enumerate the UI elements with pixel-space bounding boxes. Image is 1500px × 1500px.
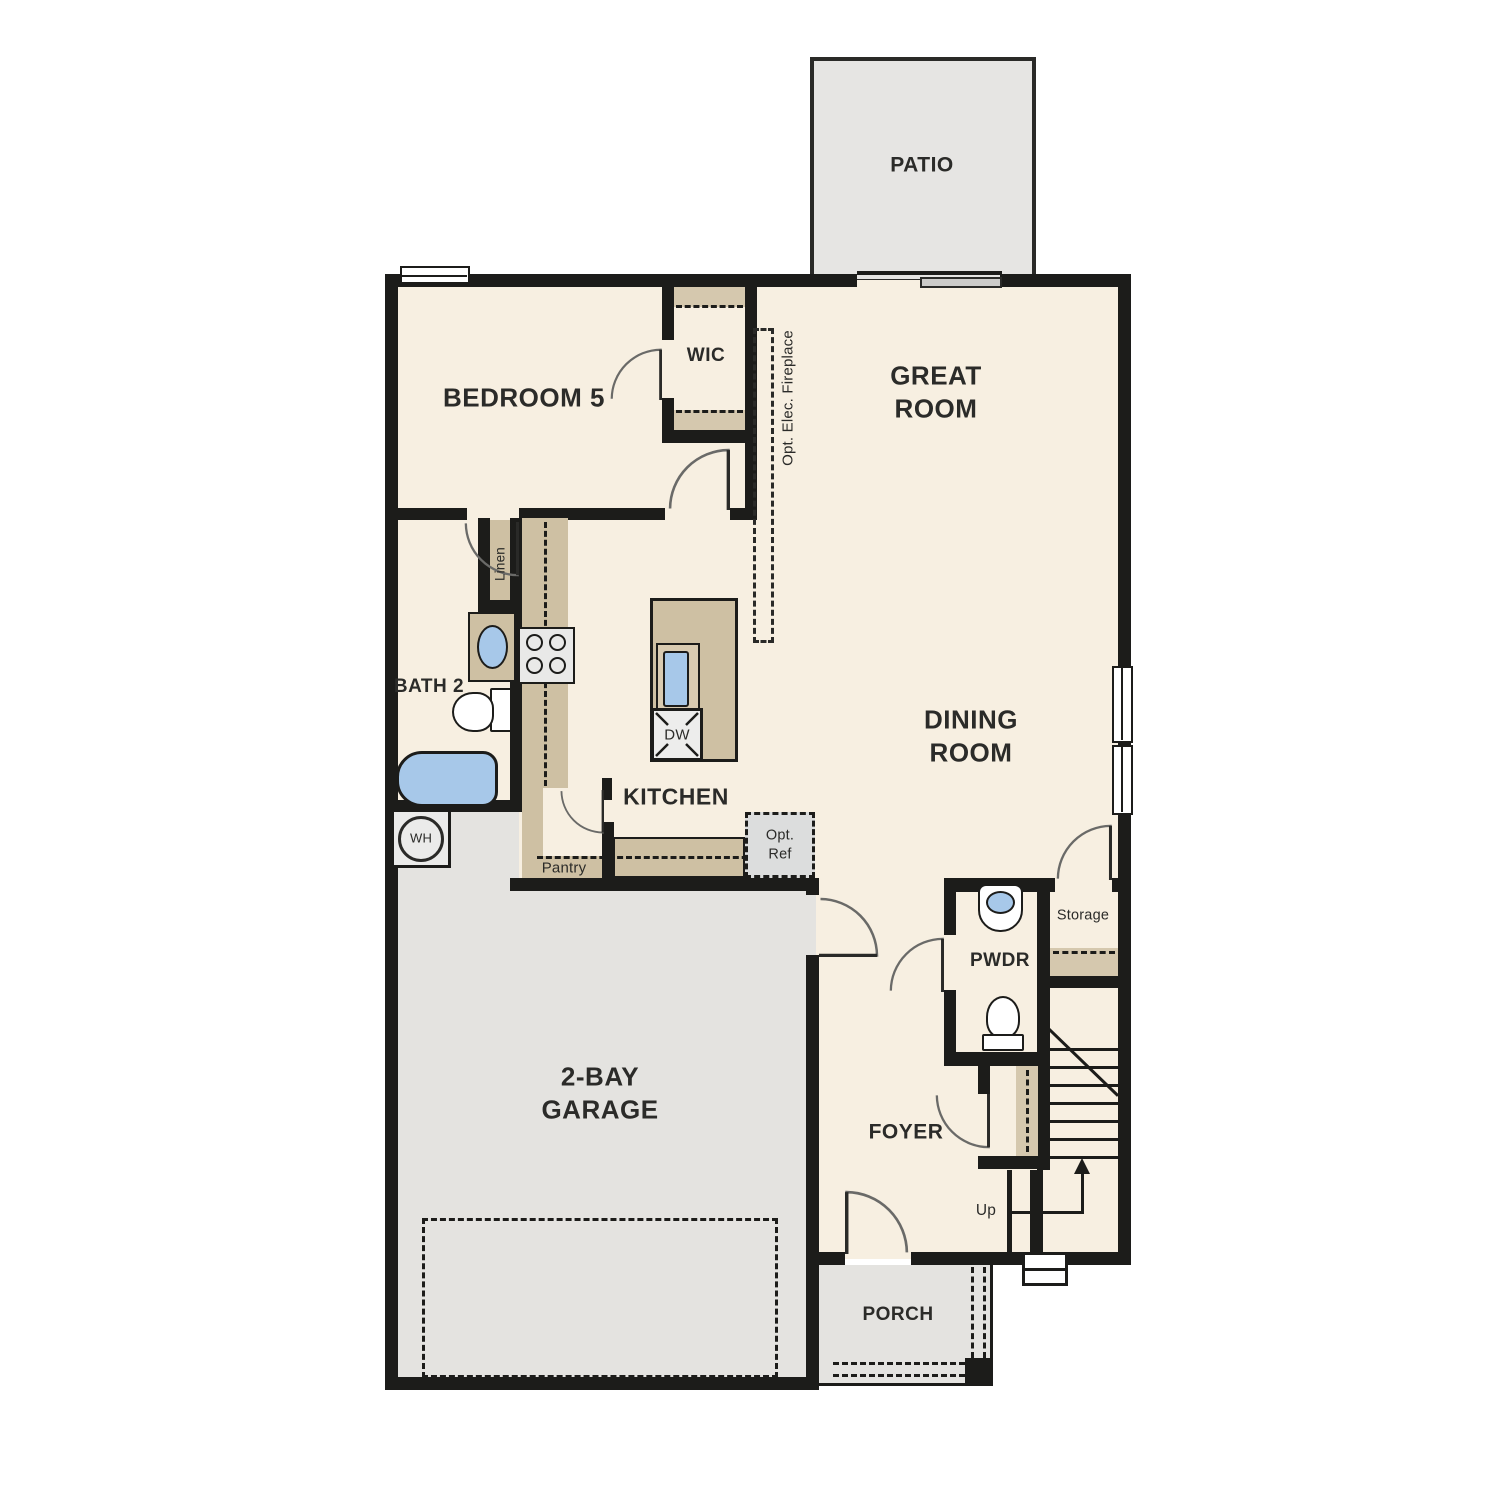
- bathtub: [396, 751, 498, 807]
- bath2-sink: [477, 625, 508, 669]
- wall: [1037, 878, 1050, 1170]
- stair-tread: [1050, 1066, 1118, 1069]
- up-arrow-head: [1074, 1158, 1090, 1174]
- label-pantry: Pantry: [542, 858, 587, 877]
- stair-tread: [1050, 1048, 1118, 1051]
- porch-dash: [833, 1374, 965, 1377]
- room-label-patio: PATIO: [890, 153, 954, 180]
- door-pantry: [560, 790, 604, 834]
- room-label-garage: 2-BAY GARAGE: [541, 1061, 658, 1128]
- burner: [526, 634, 543, 651]
- garage-door-outline: [422, 1218, 778, 1378]
- patio-door-header: [857, 271, 1002, 275]
- water-heater-label: WH: [410, 831, 432, 848]
- wall: [662, 398, 674, 432]
- opt-fireplace-outline: [753, 328, 774, 643]
- door-wic: [610, 348, 662, 400]
- door-garage-entry: [819, 897, 879, 957]
- front-step: [1022, 1252, 1068, 1286]
- wic-shelf: [674, 287, 745, 307]
- water-heater: WH: [398, 816, 444, 862]
- pwdr-toilet-bowl: [986, 996, 1020, 1038]
- shelf-dash: [676, 410, 743, 413]
- label-linen: Linen: [491, 547, 508, 581]
- stove: [518, 627, 575, 684]
- wall: [510, 878, 819, 891]
- burner: [526, 657, 543, 674]
- room-label-bedroom5: BEDROOM 5: [443, 381, 605, 414]
- room-label-bath2: BATH 2: [394, 675, 464, 699]
- up-arrow-base: [1012, 1211, 1082, 1214]
- room-label-kitchen: KITCHEN: [623, 782, 729, 811]
- stair-tread: [1050, 1102, 1118, 1105]
- dishwasher: DW: [651, 708, 703, 761]
- shelf-dash: [1026, 1070, 1029, 1152]
- shelf-dash: [1053, 951, 1115, 954]
- wall: [1000, 274, 1131, 287]
- door-storage: [1056, 824, 1112, 880]
- wall: [911, 1252, 1131, 1265]
- wall: [818, 1252, 845, 1265]
- stair-tread: [1050, 1120, 1118, 1123]
- wall: [1112, 878, 1131, 892]
- floor-plan: DW WH PATIO: [0, 0, 1500, 1500]
- room-label-foyer: FOYER: [869, 1120, 944, 1147]
- window: [1112, 745, 1133, 815]
- stair-tread: [1050, 1138, 1118, 1141]
- porch-dash: [971, 1267, 974, 1358]
- burner: [549, 634, 566, 651]
- room-label-porch: PORCH: [862, 1303, 933, 1327]
- label-stairs-up: Up: [976, 1201, 996, 1221]
- wall: [978, 1066, 990, 1094]
- pwdr-sink: [986, 891, 1015, 914]
- wall: [385, 1377, 818, 1390]
- wall: [806, 955, 819, 1390]
- window: [1112, 666, 1133, 743]
- label-opt-fireplace: Opt. Elec. Fireplace: [778, 330, 797, 466]
- wall: [978, 1156, 1050, 1169]
- dishwasher-label: DW: [664, 725, 689, 744]
- pwdr-toilet-tank: [982, 1034, 1024, 1051]
- wall: [391, 508, 467, 520]
- wall: [662, 430, 757, 443]
- up-arrow-shaft: [1081, 1172, 1084, 1214]
- shelf-dash: [676, 305, 743, 308]
- door-front: [845, 1190, 909, 1254]
- porch-post: [965, 1358, 991, 1384]
- porch-dash: [983, 1267, 986, 1358]
- wall: [944, 1052, 1050, 1066]
- door-powder: [889, 937, 944, 992]
- wall: [1037, 975, 1131, 988]
- room-label-great-room: GREAT ROOM: [890, 360, 982, 427]
- label-opt-ref: Opt. Ref: [766, 826, 794, 863]
- room-label-wic: WIC: [687, 344, 725, 368]
- room-label-dining-room: DINING ROOM: [924, 704, 1018, 771]
- window: [400, 266, 470, 284]
- wall: [662, 285, 674, 340]
- burner: [549, 657, 566, 674]
- room-label-powder: PWDR: [970, 949, 1030, 973]
- door-bedroom5: [668, 448, 730, 510]
- wic-shelf: [674, 410, 745, 430]
- sliding-door: [920, 277, 1002, 288]
- island-sink: [663, 651, 689, 707]
- porch-dash: [833, 1362, 965, 1365]
- room-label-storage: Storage: [1057, 907, 1109, 926]
